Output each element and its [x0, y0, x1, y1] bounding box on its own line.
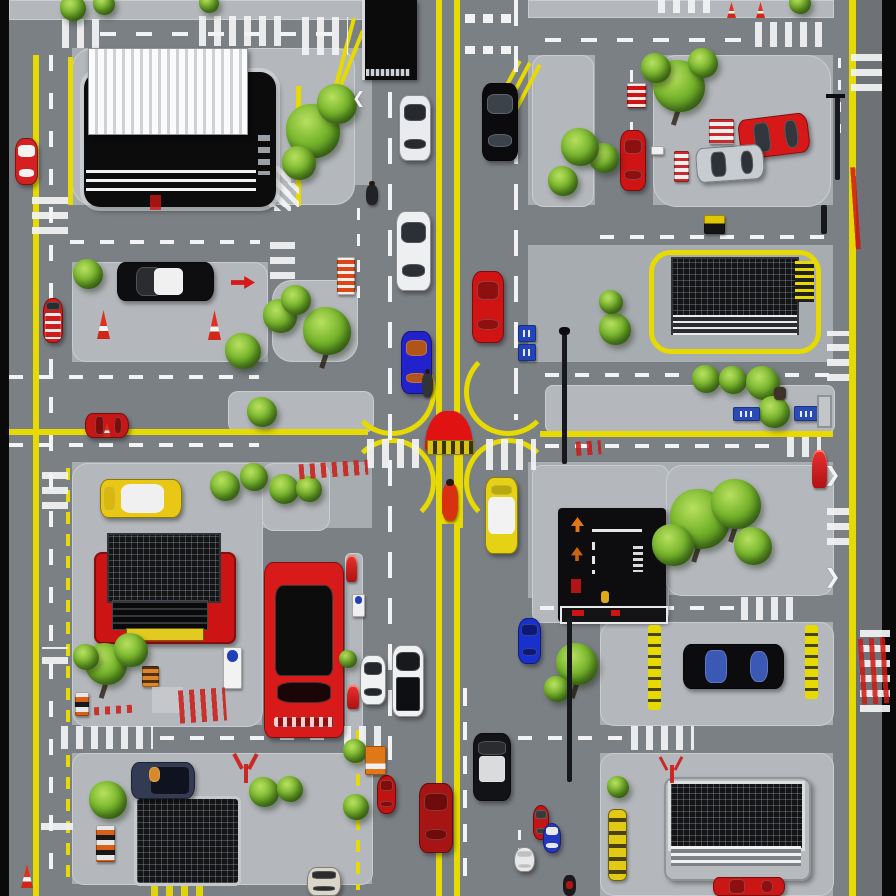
street-sign	[518, 344, 536, 361]
city-traffic-map: ❯❯❮	[0, 0, 896, 896]
lane-dash-line	[357, 208, 360, 303]
motorbike	[563, 875, 576, 896]
lane-dash-line	[600, 235, 830, 239]
yellow-turn-guide-arc	[464, 348, 552, 436]
pedestrian	[366, 185, 378, 205]
pole-cross-arm	[826, 94, 845, 98]
lane-dash-line	[545, 38, 745, 42]
crosswalk	[199, 16, 281, 46]
car-windshield	[624, 139, 642, 155]
road-outer-lane	[856, 0, 882, 896]
car-rear-glass	[425, 829, 447, 840]
tree	[303, 307, 351, 355]
street-light-pole	[562, 334, 567, 464]
tree	[719, 366, 747, 394]
vehicle-car	[472, 271, 504, 343]
car-rear-glass	[19, 169, 34, 177]
street-sign	[365, 746, 386, 775]
car-rear-glass	[364, 688, 381, 696]
lane-dash-line	[545, 373, 830, 377]
parking-lot-grid	[671, 784, 802, 848]
sidewalk-block	[545, 385, 835, 433]
vehicle-car	[399, 95, 431, 161]
shop-entrance-mark	[611, 610, 620, 616]
car-windshield	[517, 851, 532, 858]
tree	[692, 365, 720, 393]
pedestrian-head	[446, 479, 453, 486]
vehicle-sedanwrv	[473, 733, 511, 801]
yellow-lane-line	[68, 57, 73, 205]
street-sign	[651, 146, 664, 155]
street-light-pole	[835, 97, 840, 180]
mark-branch	[659, 756, 669, 771]
tree	[89, 781, 127, 819]
vehicle-car	[419, 783, 453, 853]
shop-dot-column	[633, 546, 643, 572]
crosswalk	[367, 439, 419, 468]
storefront-signage-strip	[366, 69, 410, 76]
lane-chevron-icon: ❯	[824, 566, 838, 586]
tree	[339, 650, 357, 668]
crosswalk	[270, 242, 295, 279]
lane-dash-line	[9, 375, 259, 379]
yellow-parking-marker	[805, 625, 818, 699]
crosswalk	[486, 439, 536, 470]
car-rear-glass	[114, 417, 122, 434]
crosswalk	[658, 0, 710, 13]
street-sign	[337, 257, 355, 295]
vehicle-car	[620, 130, 646, 191]
tree	[114, 633, 148, 667]
lane-dash-line	[70, 240, 260, 244]
tree	[225, 333, 261, 369]
pedestrian-head	[425, 369, 430, 374]
sign-white-icon	[523, 330, 532, 337]
tree	[247, 397, 277, 427]
sign-blue-dot	[355, 596, 363, 604]
tree	[210, 471, 240, 501]
pedestrian	[442, 483, 458, 521]
tree	[281, 285, 311, 315]
tree	[652, 524, 694, 566]
street-light-pole	[567, 617, 572, 782]
shop-floor-dashes	[592, 542, 595, 574]
fire-hydrant	[347, 685, 359, 709]
red-paint-mark	[660, 756, 683, 783]
warehouse-striped-roof	[88, 48, 248, 135]
car-windshield	[406, 340, 428, 356]
red-road-paint	[576, 440, 602, 456]
car-windshield	[95, 416, 105, 435]
hall-stairs	[671, 846, 801, 866]
street-sign	[704, 215, 725, 234]
red-paint-mark	[233, 753, 258, 783]
tree	[343, 794, 369, 820]
car-windshield	[18, 145, 34, 157]
yellow-shuttle	[608, 809, 627, 881]
map-edge-strip	[882, 0, 896, 896]
car-rear-glass	[477, 319, 498, 331]
crosswalk	[151, 881, 205, 896]
parking-lot-grid	[137, 799, 238, 883]
pedestrian	[422, 373, 433, 397]
vehicle-taxiv	[485, 477, 518, 554]
car-white-roof	[479, 756, 505, 782]
street-sign	[733, 407, 760, 421]
tree	[641, 53, 671, 83]
car-rear-glass	[546, 843, 558, 848]
tree	[73, 259, 103, 289]
car-rear-glass	[277, 682, 331, 703]
vehicle-car	[482, 83, 518, 161]
motorbike-seat	[566, 881, 574, 889]
vehicle-car	[377, 775, 396, 814]
crosswalk	[32, 193, 68, 234]
mark-branch	[673, 756, 683, 771]
vehicle-car	[713, 877, 785, 896]
car-rear-glass	[402, 264, 425, 277]
car-windshield	[491, 485, 512, 496]
yellow-lane-line	[849, 0, 856, 896]
car-windshield	[46, 302, 60, 310]
street-sign	[674, 151, 689, 182]
pole-lamp-head	[559, 327, 570, 335]
tree	[561, 128, 599, 166]
tree	[599, 313, 631, 345]
bus-shelter-panel	[817, 395, 832, 428]
crosswalk	[62, 19, 107, 48]
car-windshield	[710, 151, 727, 178]
car-sunroof-glass	[275, 585, 333, 677]
sign-white-icon	[740, 411, 754, 417]
yellow-lane-line	[9, 429, 368, 435]
lane-dash-line	[465, 46, 515, 54]
street-light-pole	[821, 205, 827, 234]
vehicle-truck	[43, 298, 63, 343]
yellow-parking-marker	[648, 625, 661, 710]
car-windshield	[487, 94, 512, 114]
lane-dash-line	[465, 14, 515, 23]
car-windshield	[477, 281, 499, 300]
parking-lot-stripes	[673, 315, 797, 335]
car-rear-glass	[518, 864, 532, 868]
street-sign	[518, 325, 536, 342]
sign-white-icon	[800, 411, 812, 417]
car-tail-stripe	[274, 717, 335, 728]
crosswalk	[41, 815, 73, 830]
car-rear-glass	[783, 120, 799, 149]
tree	[607, 776, 629, 798]
van-windshield-glow	[149, 767, 161, 782]
street-sign	[142, 666, 159, 687]
car-windshield	[396, 652, 419, 671]
tree	[269, 474, 299, 504]
street-sign	[75, 692, 89, 716]
car-windshield	[546, 827, 559, 835]
crosswalk	[827, 331, 849, 381]
car-rear-glass	[750, 651, 768, 682]
car-rear-glass	[624, 170, 641, 180]
tree	[758, 396, 790, 428]
tree	[277, 776, 303, 802]
taxi-roof	[488, 497, 514, 534]
car-windshield	[535, 810, 546, 819]
car-windshield	[312, 871, 336, 879]
lane-chevron-icon: ❮	[352, 90, 364, 106]
vehicle-car	[360, 655, 386, 705]
mark-branch	[232, 753, 243, 769]
car-rear-glass	[761, 880, 774, 893]
trash-bin	[774, 387, 786, 400]
vehicle-sedanwr	[117, 262, 214, 301]
tree	[296, 476, 322, 502]
vehicle-pickup	[392, 645, 424, 717]
parking-lot-yellow-grid	[795, 261, 814, 302]
crosswalk	[741, 597, 798, 620]
tree	[734, 527, 772, 565]
tree	[599, 290, 623, 314]
vehicle-bigsuv	[264, 562, 344, 738]
tree	[343, 739, 367, 763]
car-windshield	[729, 879, 745, 893]
vehicle-car	[683, 644, 784, 689]
station-grille	[112, 600, 208, 630]
car-rear-glass	[488, 134, 512, 146]
vehicle-car	[307, 867, 341, 896]
tree	[688, 48, 718, 78]
crosswalk	[42, 469, 68, 509]
fire-hydrant	[346, 555, 357, 582]
car-hood	[103, 486, 116, 511]
car-rear-glass	[522, 648, 537, 655]
street-sign	[352, 594, 365, 617]
sign-blue-dot	[227, 650, 238, 661]
car-white-roof	[121, 484, 164, 514]
street-sign	[96, 825, 115, 862]
station-roof-grid	[107, 533, 221, 603]
crosswalk	[42, 647, 68, 664]
shop-red-box	[571, 579, 581, 593]
warehouse-side-windows	[258, 135, 270, 175]
lane-dash-line	[518, 736, 630, 740]
warehouse-stairs	[86, 170, 256, 196]
vehicle-car	[396, 211, 431, 291]
vehicle-taxi	[100, 479, 182, 518]
crosswalk	[827, 505, 849, 545]
car-windshield	[424, 793, 448, 811]
tree	[711, 479, 761, 529]
lane-dash-line	[463, 688, 467, 883]
pedestrian-head	[369, 181, 374, 186]
mark-branch	[247, 753, 258, 769]
car-windshield	[404, 104, 426, 121]
crosswalk	[755, 22, 825, 47]
street-sign	[794, 406, 818, 421]
car-windshield	[705, 650, 727, 683]
car-windshield	[478, 741, 505, 755]
car-rear-glass	[740, 150, 754, 175]
storefront-building	[362, 0, 417, 80]
vehicle-car	[15, 138, 38, 185]
car-windshield	[521, 624, 537, 636]
car-rear-glass	[404, 139, 425, 150]
street-sign	[223, 647, 242, 689]
car-windshield	[364, 662, 382, 675]
vehicle-car	[543, 823, 561, 853]
vehicle-van	[131, 762, 195, 799]
truck-bed-stripes	[45, 313, 61, 339]
street-sign	[709, 119, 734, 144]
vehicle-car	[518, 618, 541, 664]
red-road-paint	[858, 637, 891, 705]
tree	[73, 644, 99, 670]
vehicle-car	[514, 847, 535, 872]
warehouse-entry-mark	[150, 195, 161, 210]
tree	[240, 463, 268, 491]
sign-white-icon	[523, 349, 532, 356]
car-rear-glass	[313, 886, 335, 891]
shop-entrance-mark	[572, 610, 584, 616]
lane-chevron-icon: ❯	[824, 464, 838, 484]
lane-dash-line	[9, 443, 259, 447]
pickup-bed	[396, 677, 420, 712]
tree	[317, 84, 357, 124]
tree	[282, 146, 316, 180]
tree	[548, 166, 578, 196]
shop-floor-line	[592, 529, 642, 532]
street-sign	[627, 83, 646, 108]
crosswalk	[302, 17, 348, 55]
car-white-roof	[154, 268, 183, 295]
car-windshield	[380, 780, 393, 790]
lane-dash-line	[388, 0, 392, 760]
car-rear-glass	[380, 801, 393, 807]
crosswalk	[61, 726, 153, 749]
car-windshield	[401, 222, 426, 243]
vehicle-car	[695, 144, 765, 184]
crosswalk	[851, 54, 882, 91]
crosswalk	[631, 726, 694, 750]
intersection-yellow-band	[427, 440, 474, 455]
map-edge-strip	[0, 0, 9, 896]
shop-yellow-figure	[601, 591, 609, 603]
red-road-paint	[178, 687, 227, 723]
